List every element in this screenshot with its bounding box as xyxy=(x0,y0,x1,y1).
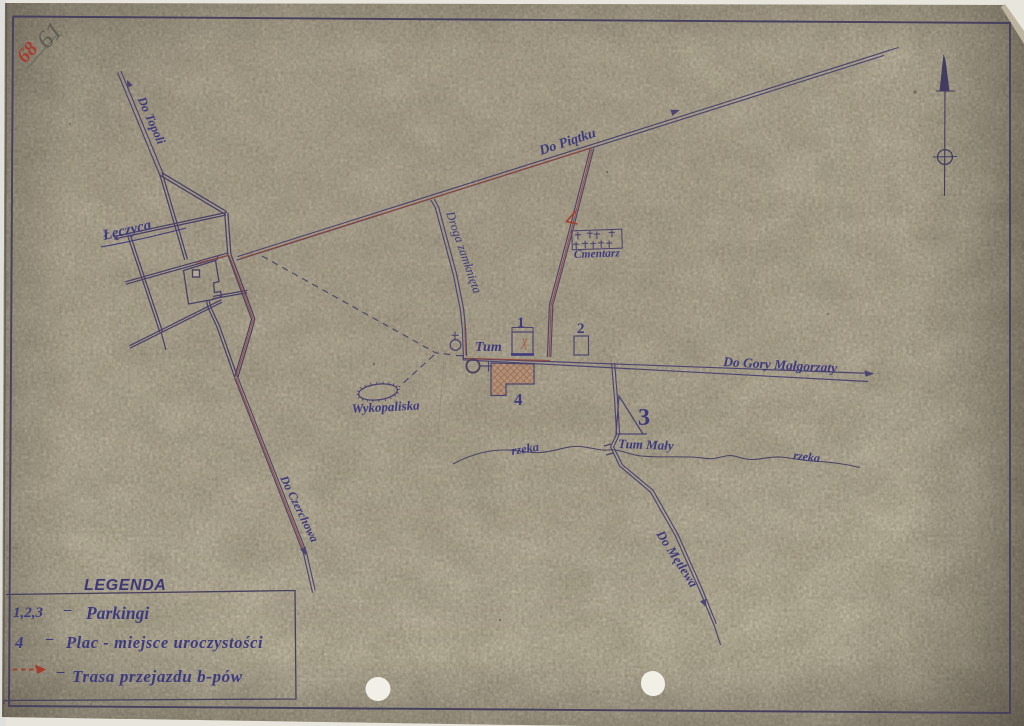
svg-text:4: 4 xyxy=(14,633,24,652)
svg-text:1: 1 xyxy=(517,315,525,331)
svg-text:Trasa przejazdu b-pów: Trasa przejazdu b-pów xyxy=(72,667,243,686)
svg-text:4: 4 xyxy=(514,390,523,409)
svg-text:Cmentarz: Cmentarz xyxy=(574,247,621,261)
svg-text:–: – xyxy=(56,664,65,680)
svg-text:Tum: Tum xyxy=(475,340,502,355)
svg-text:–: – xyxy=(63,602,72,618)
svg-text:2: 2 xyxy=(577,321,585,337)
svg-text:3: 3 xyxy=(638,405,650,431)
svg-text:LEGENDA: LEGENDA xyxy=(84,577,166,594)
svg-text:1,2,3: 1,2,3 xyxy=(13,605,44,621)
svg-text:–: – xyxy=(45,631,54,647)
svg-text:Tum Mały: Tum Mały xyxy=(618,436,674,453)
svg-text:Parkingi: Parkingi xyxy=(85,603,149,623)
svg-text:Plac - miejsce uroczystości: Plac - miejsce uroczystości xyxy=(65,633,263,652)
